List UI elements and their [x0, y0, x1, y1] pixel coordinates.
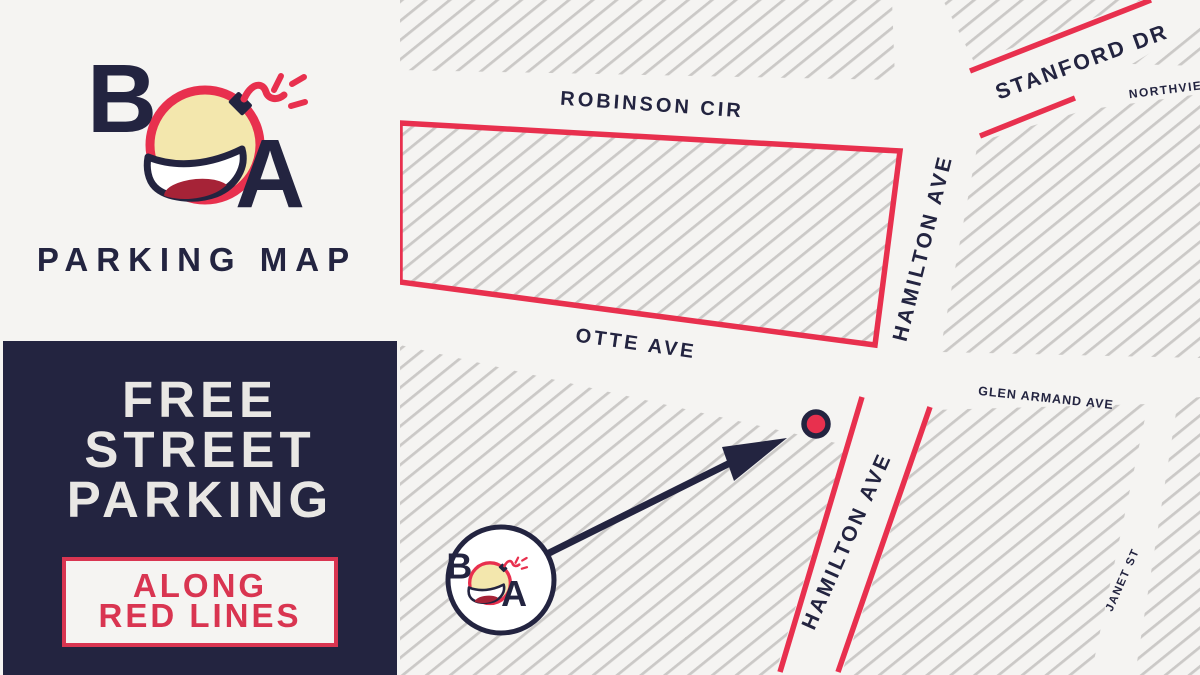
venue-marker-dot [804, 412, 828, 436]
callout-box: ALONG RED LINES [62, 557, 338, 647]
parking-map-flyer: B A PARK [0, 0, 1200, 675]
headline-line-3: PARKING [67, 475, 333, 525]
promo-panel: FREE STREET PARKING ALONG RED LINES [3, 341, 397, 675]
brand-logo: B A PARK [0, 0, 400, 340]
headline-line-1: FREE [67, 375, 333, 425]
callout-line-2: RED LINES [98, 601, 301, 631]
headline-line-2: STREET [67, 425, 333, 475]
headline: FREE STREET PARKING [67, 375, 333, 525]
city-block-north [400, 0, 895, 80]
map-logo-badge: B A [446, 527, 554, 633]
logo-letter-a: A [235, 119, 305, 228]
brand-panel: B A PARK [0, 0, 400, 675]
wordmark: PARKING MAP [37, 241, 357, 278]
street-map: ROBINSON CIR OTTE AVE HAMILTON AVE STANF… [400, 0, 1200, 675]
badge-letter-a: A [501, 574, 527, 614]
